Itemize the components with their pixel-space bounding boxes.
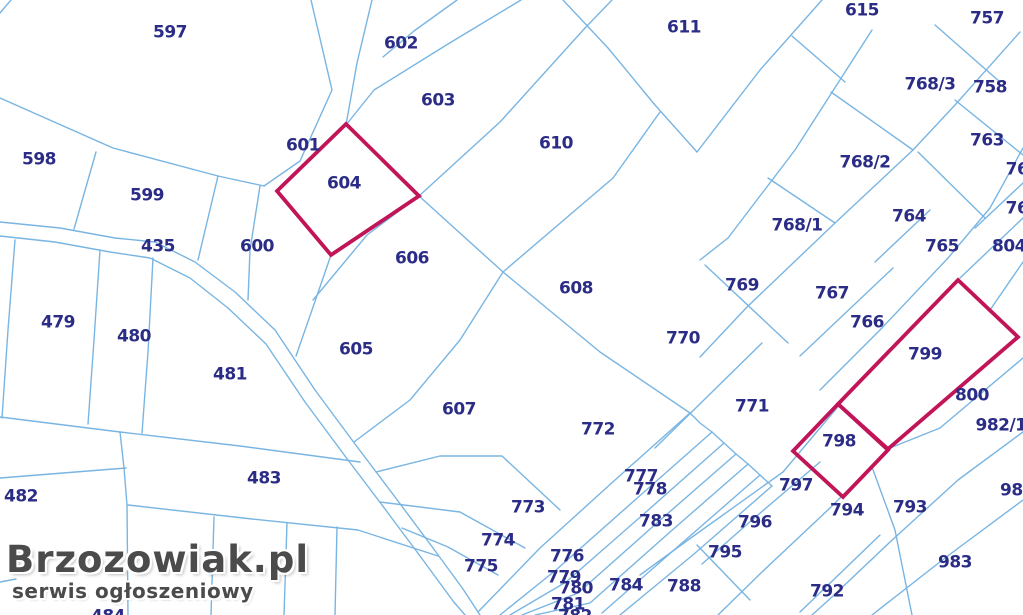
parcel-label-982: 982 [1000, 483, 1023, 500]
parcel-label-608: 608 [559, 281, 593, 298]
parcel-label-480: 480 [117, 329, 151, 346]
parcel-label-783: 783 [639, 514, 673, 531]
parcel-label-482: 482 [4, 489, 38, 506]
parcel-label-804: 804 [992, 239, 1023, 256]
parcel-label-600: 600 [240, 239, 274, 256]
parcel-label-768-1: 768/1 [771, 218, 822, 235]
parcel-label-778: 778 [633, 482, 667, 499]
parcel-label-765: 765 [925, 239, 959, 256]
parcel-label-607: 607 [442, 402, 476, 419]
parcel-label-798: 798 [822, 434, 856, 451]
parcel-label-610: 610 [539, 136, 573, 153]
parcel-label-598: 598 [22, 152, 56, 169]
parcel-label-435: 435 [141, 239, 175, 256]
parcel-label-775: 775 [464, 559, 498, 576]
parcel-label-603: 603 [421, 93, 455, 110]
parcel-label-597: 597 [153, 25, 187, 42]
parcel-label-76: 76 [1006, 201, 1023, 218]
parcel-label-76: 76 [1006, 162, 1023, 179]
parcel-label-769: 769 [725, 278, 759, 295]
parcel-label-796: 796 [738, 515, 772, 532]
parcel-label-799: 799 [908, 347, 942, 364]
parcel-label-604: 604 [327, 176, 361, 193]
parcel-label-782: 782 [558, 609, 592, 615]
parcel-label-982-1: 982/1 [975, 418, 1023, 435]
parcel-label-767: 767 [815, 286, 849, 303]
parcel-label-772: 772 [581, 422, 615, 439]
parcel-label-774: 774 [481, 533, 515, 550]
parcel-label-794: 794 [830, 503, 864, 520]
parcel-label-800: 800 [955, 388, 989, 405]
cadastral-map: 597602611615757603768/375861060176359876… [0, 0, 1023, 615]
parcel-label-483: 483 [247, 471, 281, 488]
parcel-label-606: 606 [395, 251, 429, 268]
parcel-label-605: 605 [339, 342, 373, 359]
parcel-label-601: 601 [286, 138, 320, 155]
parcel-labels-layer: 597602611615757603768/375861060176359876… [0, 0, 1023, 615]
parcel-label-764: 764 [892, 209, 926, 226]
parcel-label-793: 793 [893, 500, 927, 517]
parcel-label-788: 788 [667, 579, 701, 596]
parcel-label-776: 776 [550, 549, 584, 566]
parcel-label-484: 484 [91, 609, 125, 615]
parcel-label-757: 757 [970, 11, 1004, 28]
parcel-label-763: 763 [970, 133, 1004, 150]
parcel-label-784: 784 [609, 578, 643, 595]
parcel-label-768-2: 768/2 [839, 155, 890, 172]
parcel-label-792: 792 [810, 584, 844, 601]
parcel-label-766: 766 [850, 315, 884, 332]
parcel-label-599: 599 [130, 188, 164, 205]
parcel-label-481: 481 [213, 367, 247, 384]
parcel-label-758: 758 [973, 80, 1007, 97]
parcel-label-615: 615 [845, 3, 879, 20]
parcel-label-983: 983 [938, 555, 972, 572]
parcel-label-770: 770 [666, 331, 700, 348]
parcel-label-611: 611 [667, 20, 701, 37]
parcel-label-795: 795 [708, 545, 742, 562]
parcel-label-768-3: 768/3 [904, 77, 955, 94]
parcel-label-771: 771 [735, 399, 769, 416]
parcel-label-479: 479 [41, 315, 75, 332]
parcel-label-773: 773 [511, 500, 545, 517]
parcel-label-797: 797 [779, 478, 813, 495]
parcel-label-602: 602 [384, 36, 418, 53]
